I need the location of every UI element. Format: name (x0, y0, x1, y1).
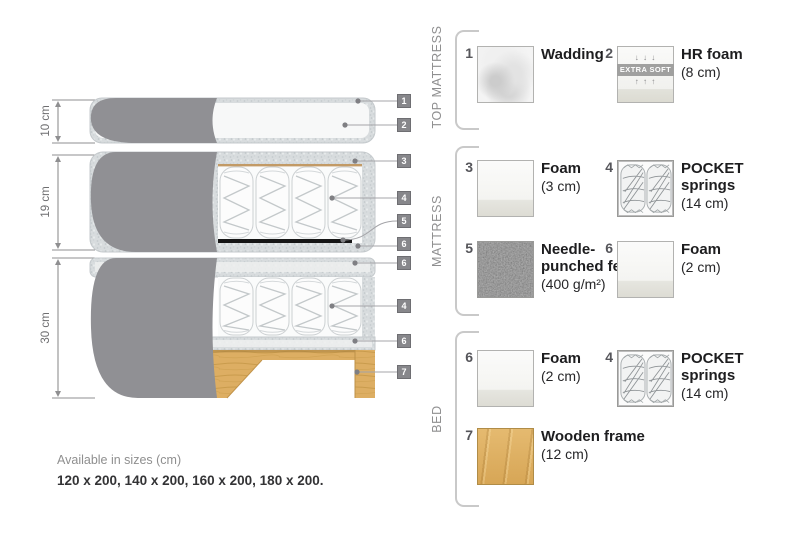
arrows-up: ↑ ↑ ↑ (635, 78, 656, 86)
arrows-down: ↓ ↓ ↓ (635, 54, 656, 62)
section-label-bed: BED (430, 405, 444, 433)
layer-tag-6c: 6 (397, 334, 411, 348)
dimension-label-30cm: 30 cm (40, 312, 52, 343)
layer-tag-1: 1 (397, 94, 411, 108)
available-sizes-list: 120 x 200, 140 x 200, 160 x 200, 180 x 2… (57, 473, 324, 488)
top-mattress-layer (90, 98, 375, 143)
layer-tag-2: 2 (397, 118, 411, 132)
wood-swatch (477, 428, 534, 485)
felt-strip (218, 239, 352, 243)
hr-foam-swatch: ↓ ↓ ↓ EXTRA SOFT ↑ ↑ ↑ (617, 46, 674, 103)
dimension-label-10cm: 10 cm (40, 105, 52, 136)
dimension-label-19cm: 19 cm (40, 186, 52, 217)
legend-number: 2 (598, 46, 613, 61)
layer-tag-4b: 4 (397, 299, 411, 313)
layer-tag-3: 3 (397, 154, 411, 168)
legend-item-wooden-frame: 7 Wooden frame (12 cm) (458, 428, 671, 485)
legend-item-hr-foam: 2 ↓ ↓ ↓ EXTRA SOFT ↑ ↑ ↑ HR foam (8 cm) (598, 46, 771, 103)
layer-tag-6: 6 (397, 237, 411, 251)
legend-item-foam-2cm: 6 Foam (2 cm) (598, 241, 771, 298)
available-sizes-heading: Available in sizes (cm) (57, 453, 181, 467)
extra-soft-badge: EXTRA SOFT (617, 64, 674, 76)
felt-swatch (477, 241, 534, 298)
wadding-swatch (477, 46, 534, 103)
legend-number: 5 (458, 241, 473, 256)
pocket-springs-swatch (617, 160, 674, 217)
section-label-top-mattress: TOP MATTRESS (430, 25, 444, 128)
legend-number: 4 (598, 350, 613, 365)
foam-swatch (477, 160, 534, 217)
legend-number: 3 (458, 160, 473, 175)
foam-swatch (617, 241, 674, 298)
layer-tag-7: 7 (397, 365, 411, 379)
dimension-arrows (52, 100, 95, 398)
legend-number: 6 (458, 350, 473, 365)
legend-number: 6 (598, 241, 613, 256)
legend-number: 4 (598, 160, 613, 175)
bed-cross-section-diagram (40, 85, 420, 415)
foam-swatch (477, 350, 534, 407)
legend-number: 1 (458, 46, 473, 61)
layer-tag-5: 5 (397, 214, 411, 228)
layer-tag-4: 4 (397, 191, 411, 205)
mattress-layer (90, 152, 375, 252)
bed-base-layer (90, 258, 375, 398)
pocket-springs-swatch (617, 350, 674, 407)
wooden-frame (190, 350, 375, 398)
layer-tag-6b: 6 (397, 256, 411, 270)
legend-item-pocket-springs: 4 POCKET springs (14 cm) (598, 160, 771, 217)
legend-number: 7 (458, 428, 473, 443)
section-label-mattress: MATTRESS (430, 195, 444, 267)
legend-item-bed-pocket-springs: 4 POCKET springs (14 cm) (598, 350, 771, 407)
bed-construction-infographic: 10 cm 19 cm 30 cm 1 2 3 4 5 6 6 4 6 7 TO… (0, 0, 800, 533)
